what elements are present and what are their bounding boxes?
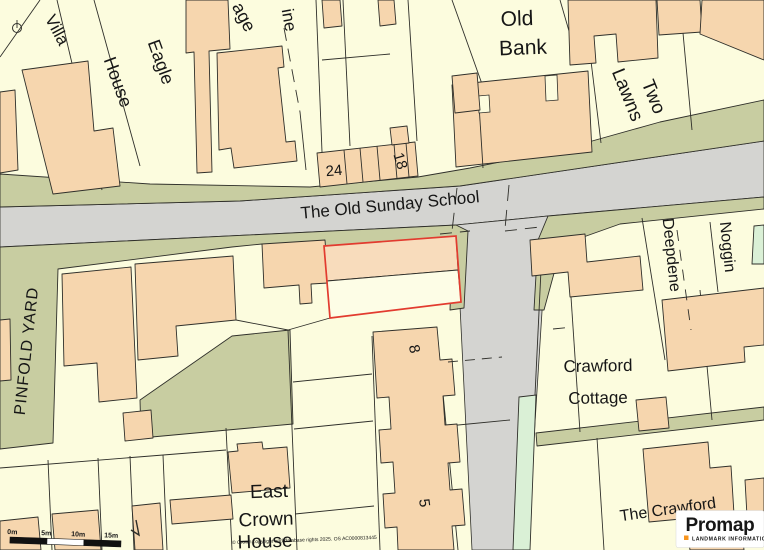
boundary-line — [163, 455, 167, 550]
scale-bar-segment — [10, 537, 47, 544]
boundary-line — [452, 0, 482, 84]
boundary-line — [408, 0, 417, 141]
building — [452, 73, 480, 113]
building — [378, 0, 396, 26]
label-lane-partial: ine — [278, 7, 301, 33]
label-old-bank-line1: Old — [500, 7, 533, 31]
boundary-line — [597, 438, 604, 550]
promap-logo-tagline: LANDMARK INFORMATION — [692, 537, 764, 543]
building-notch — [545, 75, 558, 101]
boundary-line — [710, 222, 718, 292]
boundary-line — [343, 0, 350, 146]
label-old-bank-line2: Bank — [499, 36, 548, 61]
selected-plot[interactable] — [324, 236, 461, 318]
building — [390, 126, 409, 145]
building — [22, 61, 120, 194]
label-crawford-cottage-line2: Cottage — [568, 388, 628, 408]
boundary-line — [322, 54, 390, 60]
building — [568, 0, 658, 65]
building — [662, 288, 764, 371]
dashed-boundary — [553, 327, 573, 329]
boundary-line — [295, 506, 374, 514]
building-column-8-5 — [373, 327, 465, 550]
building — [62, 267, 137, 402]
boundary-line — [591, 61, 601, 143]
label-crawford-cottage-line1: Crawford — [563, 356, 632, 376]
promap-logo-wordmark: Promap — [686, 515, 755, 536]
label-east-crown-house-line2: Crown — [238, 509, 294, 532]
boundary-line — [0, 450, 226, 468]
map-page: Villa Eagle House age ine 24 18 Old Bank… — [0, 0, 764, 550]
building — [0, 90, 18, 173]
building — [0, 319, 11, 381]
building — [657, 0, 702, 35]
scale-label-5m: 5m — [41, 530, 51, 537]
boundary-line — [294, 421, 373, 429]
label-cottage-partial: age — [228, 0, 260, 35]
building — [322, 0, 342, 28]
boundary-line — [316, 0, 322, 152]
building — [262, 240, 328, 304]
landmark-square-icon — [684, 536, 689, 541]
label-number-24: 24 — [325, 162, 343, 180]
scale-label-0m: 0m — [7, 529, 17, 536]
scale-label-10m: 10m — [71, 531, 85, 538]
boundary-line — [226, 428, 232, 550]
label-villa: Villa — [41, 11, 73, 48]
building — [217, 46, 297, 168]
boundary-line — [293, 374, 372, 382]
boundary-line — [130, 456, 134, 550]
label-east-crown-house-line1: East — [250, 481, 289, 503]
boundary-line — [683, 33, 692, 130]
building — [0, 517, 41, 550]
boundary-line — [300, 112, 306, 170]
building — [123, 410, 153, 441]
dashed-boundary — [284, 28, 300, 112]
boundary-line — [0, 0, 40, 57]
label-eagle-house-line2: House — [100, 54, 137, 110]
building — [700, 0, 764, 60]
label-deepdene: Deepdene — [659, 217, 684, 292]
boundary-line — [288, 318, 330, 330]
building — [170, 495, 233, 524]
map-viewport[interactable]: Villa Eagle House age ine 24 18 Old Bank… — [0, 0, 764, 550]
boundary-line — [236, 320, 288, 330]
label-eagle-house-line1: Eagle — [144, 37, 179, 87]
scale-bar-segment — [84, 540, 121, 547]
label-noggin: Noggin — [716, 221, 738, 273]
scale-label-15m: 15m — [104, 532, 118, 539]
promap-logo: Promap LANDMARK INFORMATION — [676, 511, 764, 548]
mint-strip-noggin — [752, 225, 764, 264]
scale-bar-segment — [47, 538, 84, 545]
building — [636, 397, 669, 431]
